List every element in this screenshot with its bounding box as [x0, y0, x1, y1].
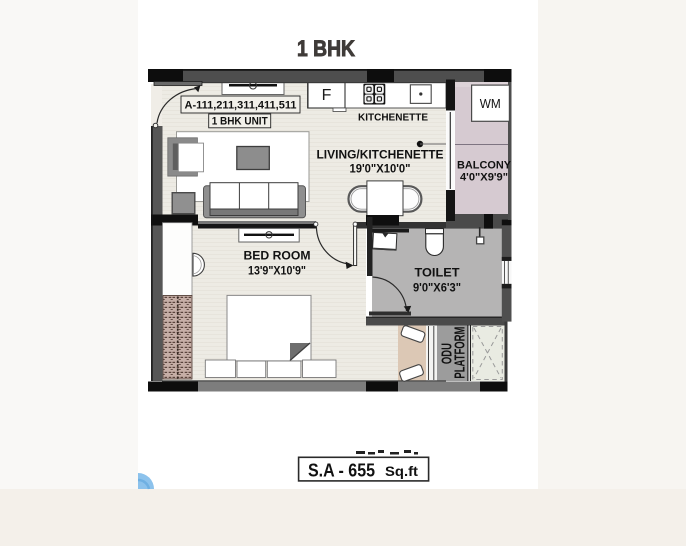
svg-text:9'0"X6'3": 9'0"X6'3" [413, 283, 461, 295]
svg-text:PLATFORM: PLATFORM [452, 327, 469, 379]
svg-text:LIVING/KITCHENETTE: LIVING/KITCHENETTE [317, 148, 444, 162]
svg-text:WM: WM [480, 96, 501, 111]
svg-text:A-111,211,311,411,511: A-111,211,311,411,511 [185, 100, 297, 112]
svg-text:BALCONY: BALCONY [457, 160, 512, 172]
svg-text:F: F [322, 87, 332, 104]
svg-text:1 BHK UNIT: 1 BHK UNIT [212, 116, 268, 128]
svg-text:19'0"X10'0": 19'0"X10'0" [350, 162, 411, 176]
svg-text:13'9"X10'9": 13'9"X10'9" [248, 264, 306, 278]
svg-text:Sq.ft: Sq.ft [385, 464, 419, 479]
svg-text:KITCHENETTE: KITCHENETTE [358, 112, 428, 124]
svg-text:S.A - 655: S.A - 655 [308, 461, 375, 481]
svg-text:4'0"X9'9": 4'0"X9'9" [460, 172, 508, 184]
svg-text:1 BHK: 1 BHK [297, 36, 355, 61]
svg-text:TOILET: TOILET [415, 266, 461, 280]
svg-text:BED ROOM: BED ROOM [244, 249, 311, 263]
